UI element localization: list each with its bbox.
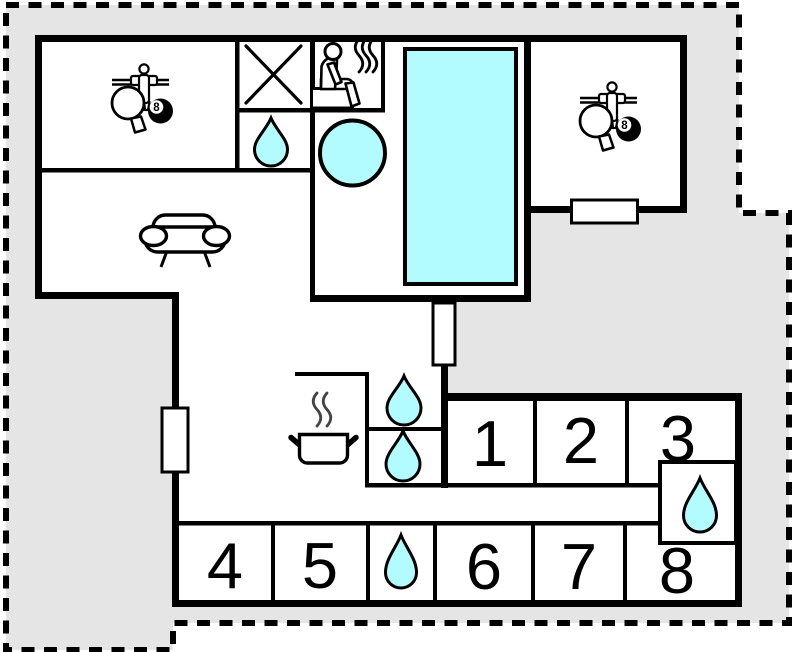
wall-segment bbox=[433, 525, 437, 600]
wall-segment bbox=[680, 35, 687, 213]
room-number-8: 8 bbox=[659, 534, 695, 607]
wall-segment bbox=[625, 401, 629, 487]
sofa-armrest bbox=[141, 227, 167, 246]
door-marker bbox=[433, 303, 455, 365]
window-marker bbox=[162, 408, 188, 472]
wall-segment bbox=[623, 525, 627, 600]
floor-plan-canvas: 8 bbox=[0, 0, 793, 652]
wall-segment bbox=[295, 372, 369, 376]
wall-segment bbox=[35, 35, 42, 299]
hot-tub-icon bbox=[320, 121, 385, 186]
room-number-2: 2 bbox=[563, 404, 599, 477]
wall-segment bbox=[524, 35, 531, 302]
wall-segment bbox=[235, 35, 240, 172]
wall-segment bbox=[366, 525, 370, 600]
wall-segment bbox=[531, 525, 535, 600]
wall-segment bbox=[179, 521, 662, 526]
room-number-4: 4 bbox=[207, 529, 243, 602]
wall-segment bbox=[35, 168, 315, 173]
wall-segment bbox=[310, 35, 315, 295]
room-number-1: 1 bbox=[472, 407, 508, 480]
wall-segment bbox=[365, 483, 662, 488]
wall-segment bbox=[365, 427, 445, 431]
swimming-pool-icon bbox=[405, 49, 516, 284]
window-marker bbox=[572, 200, 638, 223]
wall-segment bbox=[35, 292, 179, 299]
wall-segment bbox=[172, 600, 742, 607]
wall-segment bbox=[35, 35, 687, 42]
sofa-armrest bbox=[204, 227, 230, 246]
wall-segment bbox=[271, 525, 275, 600]
room-number-6: 6 bbox=[466, 530, 502, 603]
pot-body bbox=[300, 435, 348, 464]
wall-segment bbox=[310, 295, 531, 302]
wall-segment bbox=[533, 401, 537, 487]
room-number-3: 3 bbox=[660, 402, 696, 475]
wall-segment bbox=[381, 35, 385, 112]
wall-segment bbox=[441, 393, 742, 401]
room-number-5: 5 bbox=[302, 529, 338, 602]
room-number-7: 7 bbox=[561, 530, 597, 603]
